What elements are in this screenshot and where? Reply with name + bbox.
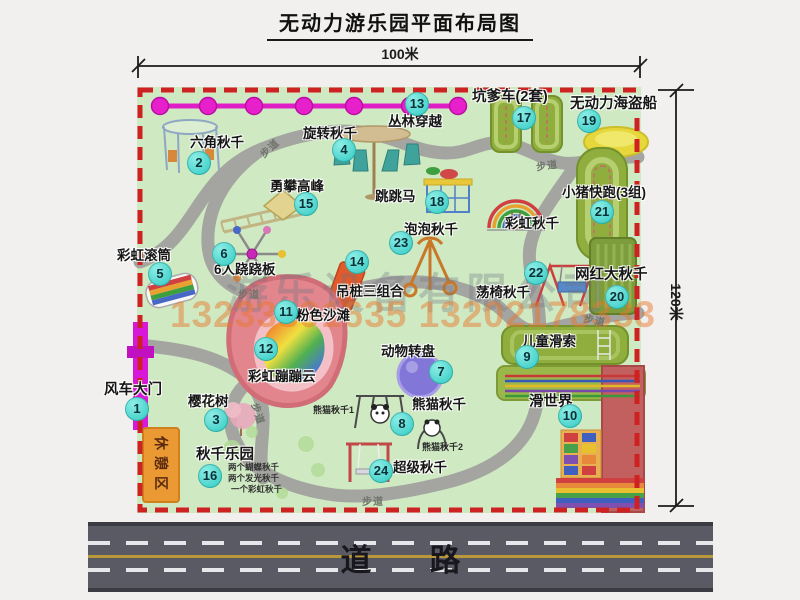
- marker-19: 19: [577, 109, 601, 133]
- walkway-label-2: 步道: [535, 156, 559, 174]
- label-bubble-swing: 泡泡秋千: [404, 218, 458, 238]
- label-rainbow-cloud: 彩虹蹦蹦云: [248, 365, 316, 385]
- marker-21: 21: [590, 200, 614, 224]
- label-rainbow-roller: 彩虹滚筒: [117, 244, 171, 264]
- label-piggy-run: 小猪快跑(3组): [562, 181, 646, 201]
- label-pink-beach: 粉色沙滩: [296, 304, 350, 324]
- label-super-swing: 超级秋千: [393, 456, 447, 476]
- label-kengdie-car: 坑爹车(2套): [472, 85, 548, 106]
- road: 道路: [88, 522, 713, 592]
- road-label: 道路: [88, 526, 713, 588]
- marker-7: 7: [429, 360, 453, 384]
- marker-20: 20: [605, 285, 629, 309]
- label-climbing-peak: 勇攀高峰: [270, 175, 324, 195]
- width-dimension-label: 100米: [340, 44, 460, 64]
- marker-5: 5: [148, 262, 172, 286]
- marker-14: 14: [345, 250, 369, 274]
- label-big-swing: 网红大秋千: [575, 263, 648, 284]
- marker-23: 23: [389, 231, 413, 255]
- marker-13: 13: [405, 92, 429, 116]
- marker-1: 1: [125, 397, 149, 421]
- title-bar: 无动力游乐园平面布局图: [0, 7, 800, 41]
- playground-plan-screenshot: 游乐设备有限公司 13233891635 13202178333 无动力游乐园平…: [0, 0, 800, 600]
- label-rest-area: 休憩区: [151, 431, 171, 501]
- marker-10: 10: [558, 404, 582, 428]
- label-rainbow-swing: 彩虹秋千: [505, 212, 559, 232]
- label-swing-note-3: 一个彩虹秋千: [231, 483, 282, 495]
- label-windmill-gate: 风车大门: [104, 378, 162, 399]
- marker-12: 12: [254, 337, 278, 361]
- label-panda-swing-2: 熊猫秋千2: [422, 440, 463, 453]
- marker-17: 17: [512, 106, 536, 130]
- marker-4: 4: [332, 138, 356, 162]
- label-hanging-post: 吊桩三组合: [336, 280, 404, 300]
- walkway-label-5: 步道: [362, 493, 384, 508]
- marker-18: 18: [425, 190, 449, 214]
- height-dimension-label: 120米: [666, 262, 686, 342]
- marker-9: 9: [515, 345, 539, 369]
- label-panda-swing: 熊猫秋千: [412, 393, 466, 413]
- page-title: 无动力游乐园平面布局图: [267, 7, 533, 41]
- label-hexagon-swing: 六角秋千: [190, 131, 244, 151]
- label-jump-horse: 跳跳马: [375, 185, 416, 205]
- marker-22: 22: [524, 261, 548, 285]
- label-cherry-tree: 樱花树: [188, 390, 229, 410]
- marker-24: 24: [369, 459, 393, 483]
- marker-6: 6: [212, 242, 236, 266]
- marker-2: 2: [187, 151, 211, 175]
- walkway-label-3: 步道: [238, 286, 260, 301]
- label-animal-turntable: 动物转盘: [381, 340, 435, 360]
- marker-8: 8: [390, 412, 414, 436]
- marker-15: 15: [294, 192, 318, 216]
- marker-16: 16: [198, 464, 222, 488]
- label-panda-swing-1: 熊猫秋千1: [313, 403, 354, 416]
- marker-11: 11: [274, 300, 298, 324]
- label-rocking-chair-swing: 荡椅秋千: [476, 281, 530, 301]
- marker-3: 3: [204, 408, 228, 432]
